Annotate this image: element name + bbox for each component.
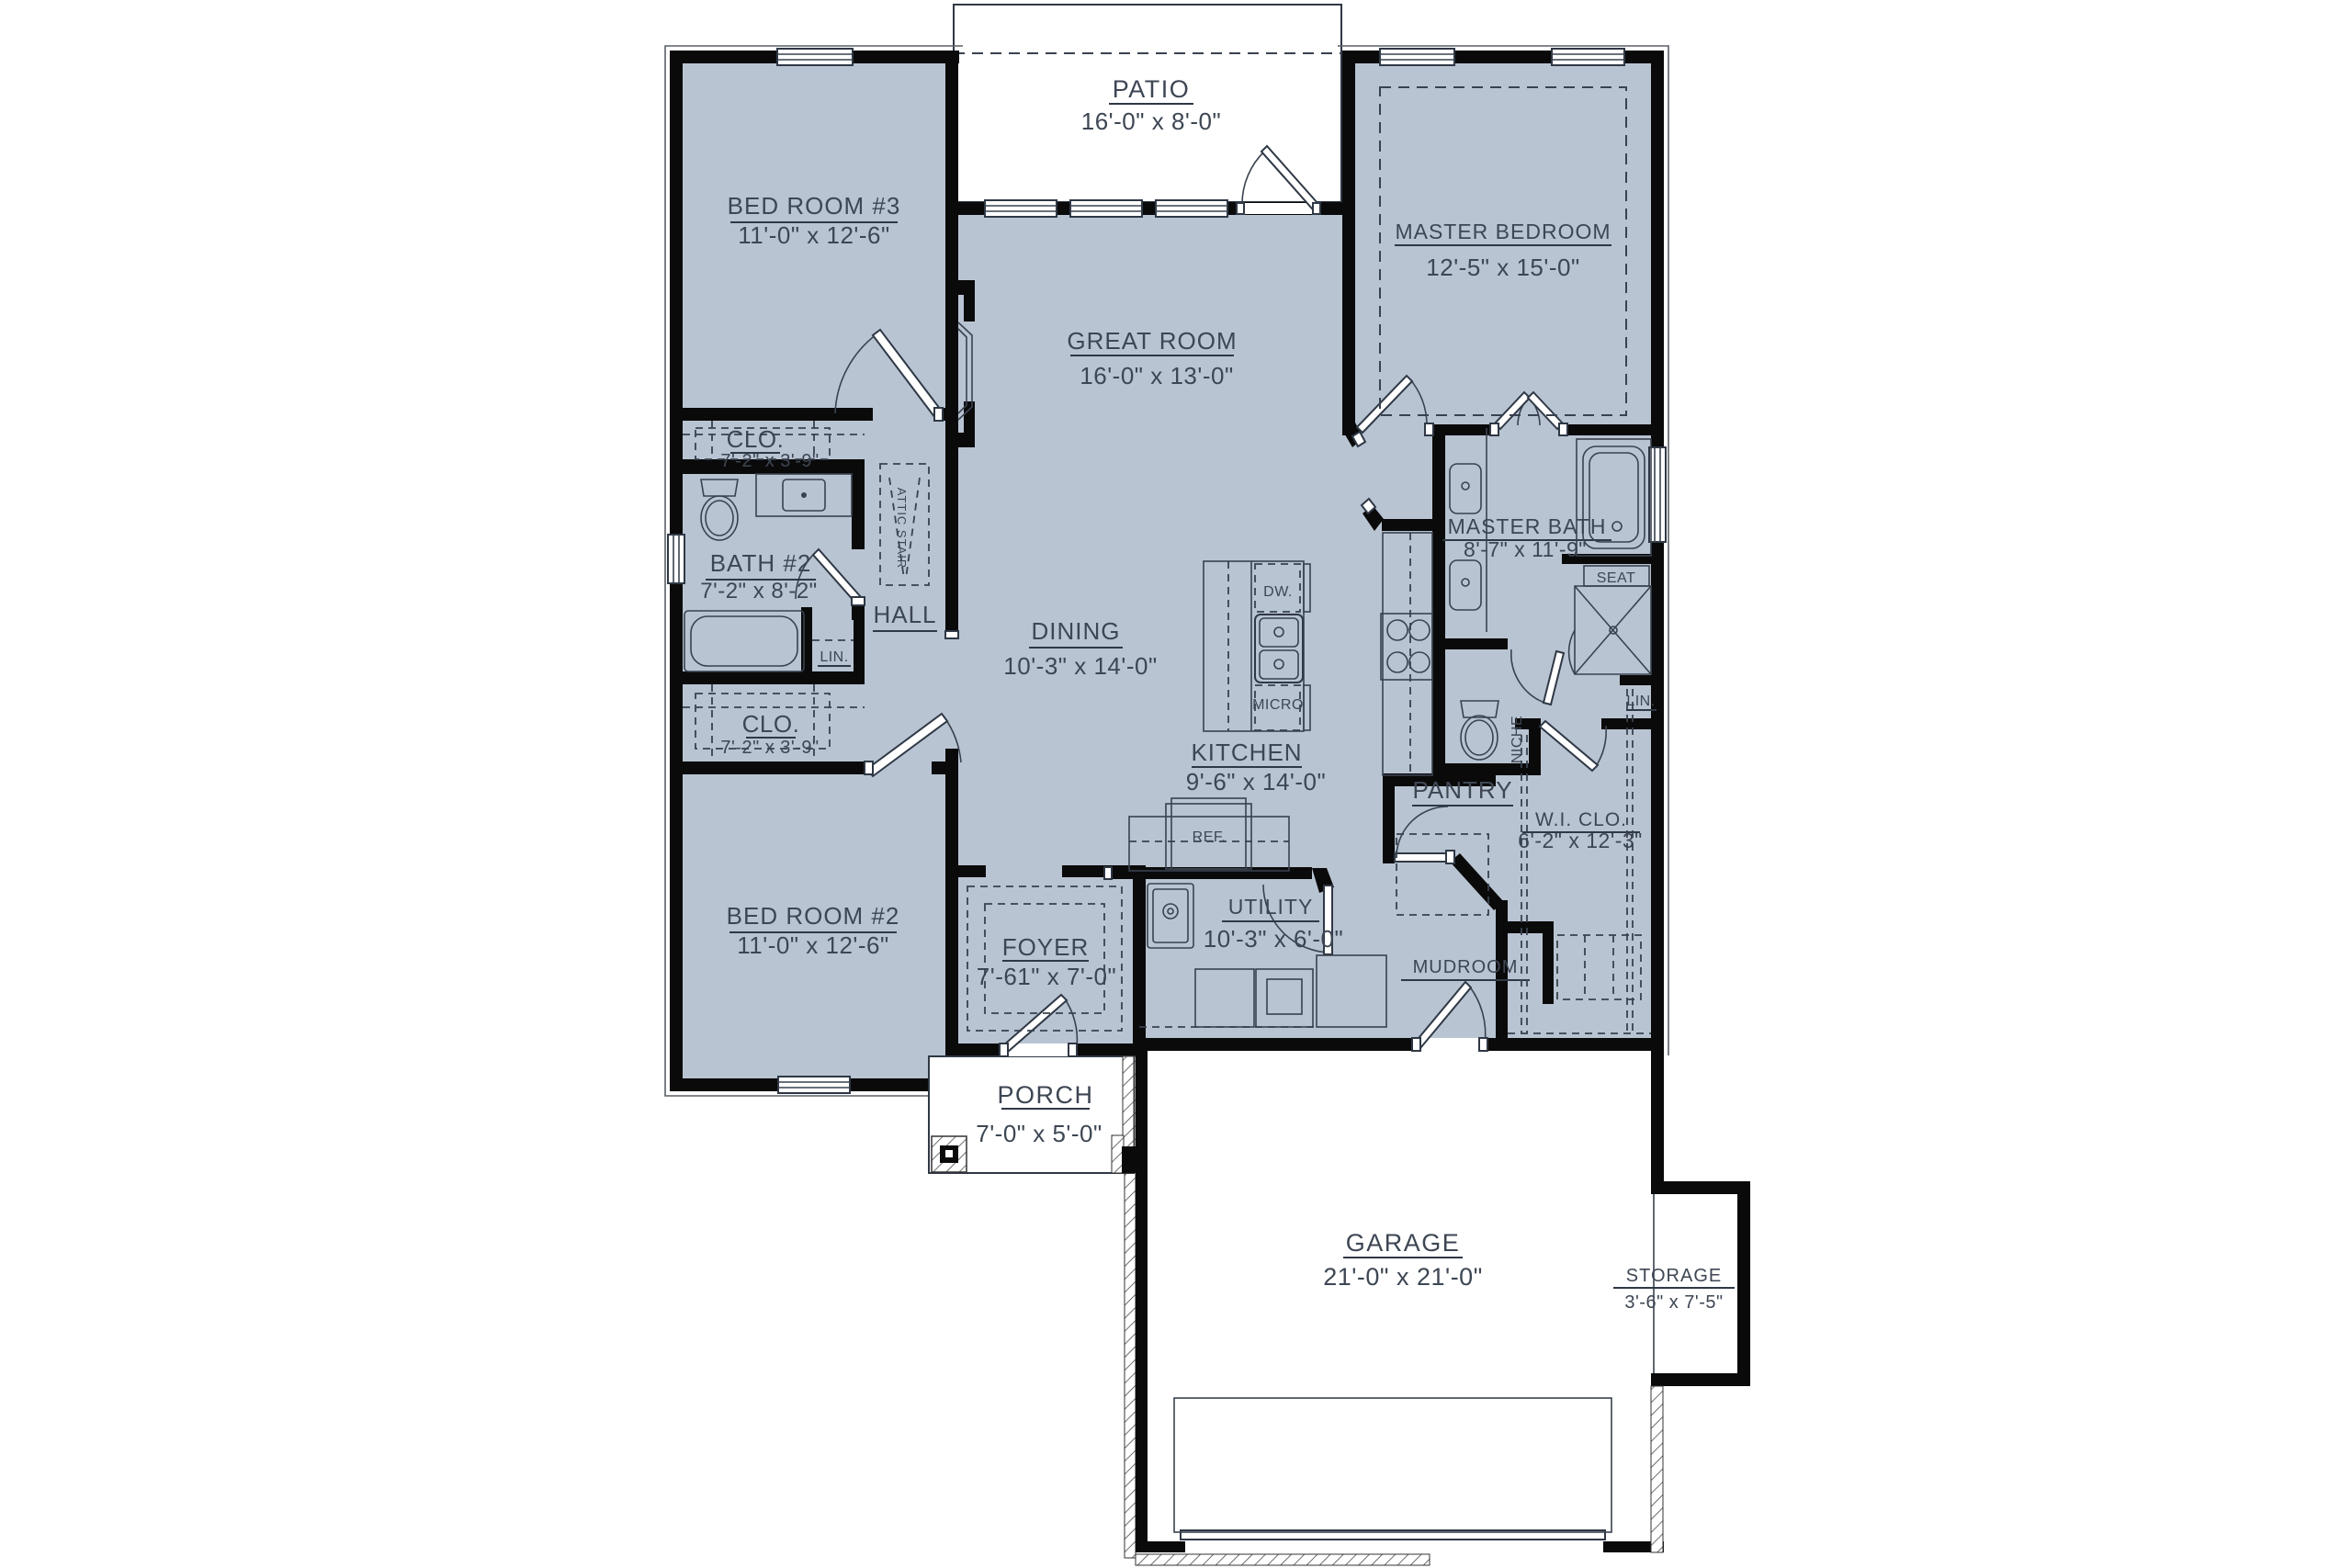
svg-text:PANTRY: PANTRY [1412, 776, 1512, 804]
svg-text:8'-7" x 11'-9": 8'-7" x 11'-9" [1464, 537, 1587, 561]
svg-text:PORCH: PORCH [997, 1081, 1093, 1109]
svg-text:DINING: DINING [1032, 617, 1121, 645]
svg-text:BATH #2: BATH #2 [710, 549, 812, 577]
svg-text:11'-0" x 12'-6": 11'-0" x 12'-6" [737, 931, 888, 959]
svg-text:PATIO: PATIO [1113, 75, 1191, 103]
svg-text:SEAT: SEAT [1597, 570, 1636, 586]
svg-text:CLO.: CLO. [727, 425, 785, 453]
svg-text:7'-2" x 3'-9": 7'-2" x 3'-9" [720, 738, 819, 758]
svg-text:6'-2" x 12'-3": 6'-2" x 12'-3" [1518, 829, 1643, 852]
svg-text:MASTER BEDROOM: MASTER BEDROOM [1395, 220, 1611, 243]
svg-text:LIN.: LIN. [1626, 694, 1655, 709]
svg-text:REF.: REF. [1193, 829, 1227, 845]
svg-text:11'-0" x 12'-6": 11'-0" x 12'-6" [738, 221, 889, 249]
svg-text:9'-6" x 14'-0": 9'-6" x 14'-0" [1186, 768, 1326, 795]
svg-text:GREAT ROOM: GREAT ROOM [1067, 327, 1237, 355]
svg-text:BED ROOM #2: BED ROOM #2 [727, 902, 900, 930]
svg-text:7'-2" x 3'-9": 7'-2" x 3'-9" [720, 451, 819, 471]
svg-text:7'-0" x 5'-0": 7'-0" x 5'-0" [976, 1120, 1102, 1147]
svg-text:7'-2" x 8'-2": 7'-2" x 8'-2" [700, 579, 817, 604]
svg-text:7'-61" x 7'-0": 7'-61" x 7'-0" [977, 963, 1116, 990]
svg-text:KITCHEN: KITCHEN [1191, 739, 1302, 766]
svg-text:12'-5" x 15'-0": 12'-5" x 15'-0" [1426, 254, 1579, 281]
svg-text:MICRO: MICRO [1252, 697, 1304, 713]
svg-text:GARAGE: GARAGE [1346, 1229, 1461, 1257]
svg-text:HALL: HALL [873, 601, 936, 628]
svg-text:10'-3" x 6'-0": 10'-3" x 6'-0" [1204, 925, 1343, 953]
svg-text:21'-0" x 21'-0": 21'-0" x 21'-0" [1323, 1263, 1483, 1291]
svg-text:STORAGE: STORAGE [1626, 1266, 1722, 1286]
svg-text:3'-6" x 7'-5": 3'-6" x 7'-5" [1624, 1292, 1723, 1313]
svg-text:MUDROOM: MUDROOM [1413, 957, 1519, 977]
svg-text:16'-0" x 13'-0": 16'-0" x 13'-0" [1080, 362, 1233, 389]
svg-text:CLO.: CLO. [742, 710, 800, 738]
svg-text:10'-3" x 14'-0": 10'-3" x 14'-0" [1003, 652, 1157, 680]
svg-text:BED ROOM #3: BED ROOM #3 [728, 192, 901, 220]
svg-text:DW.: DW. [1263, 584, 1293, 600]
svg-text:LIN.: LIN. [820, 649, 848, 665]
svg-text:ATTIC STAIR: ATTIC STAIR [895, 488, 909, 570]
svg-text:16'-0" x 8'-0": 16'-0" x 8'-0" [1081, 107, 1221, 135]
svg-text:NICHE: NICHE [1510, 716, 1525, 763]
svg-text:W.I. CLO.: W.I. CLO. [1535, 809, 1627, 830]
svg-text:FOYER: FOYER [1002, 933, 1090, 961]
svg-text:UTILITY: UTILITY [1228, 895, 1314, 919]
